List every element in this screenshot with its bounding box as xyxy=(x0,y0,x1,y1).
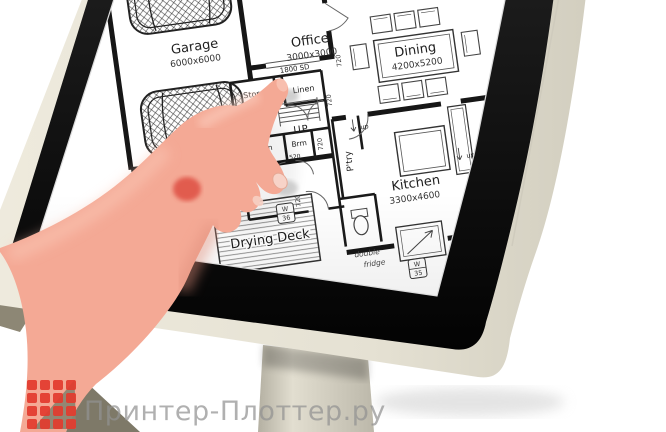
monitor-shadow xyxy=(375,388,565,416)
finger-gap-shadow xyxy=(173,177,201,201)
product-photo: W 36 W 35 Garage 6000x6000 Office xyxy=(0,0,666,432)
scene: W 36 W 35 Garage 6000x6000 Office xyxy=(0,0,666,432)
